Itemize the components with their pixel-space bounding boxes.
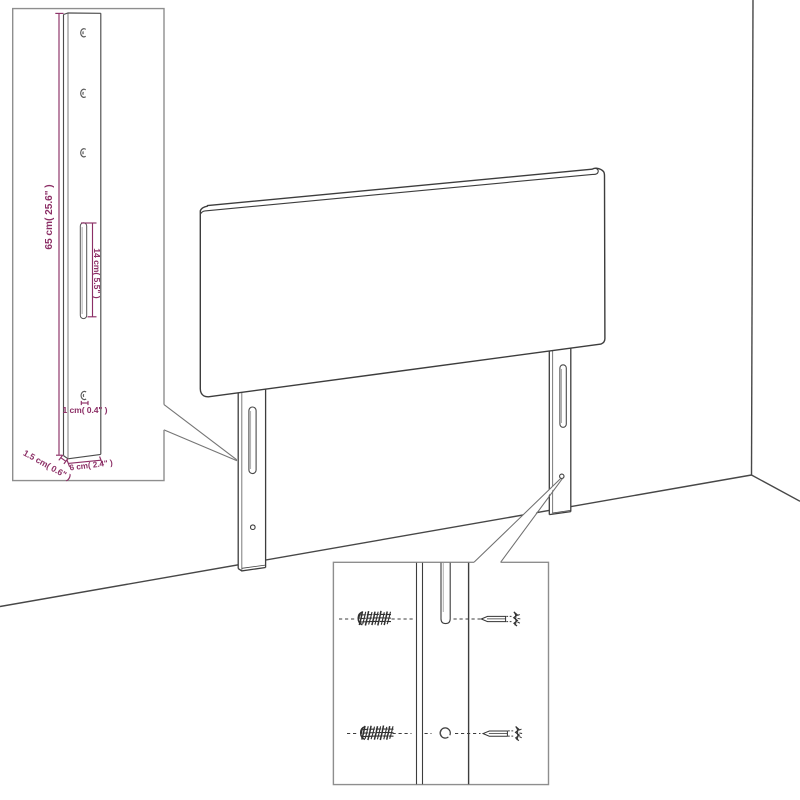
svg-text:14 cm( 5.5" ): 14 cm( 5.5" ) <box>92 248 102 298</box>
svg-text:1 cm( 0.4" ): 1 cm( 0.4" ) <box>63 405 108 415</box>
svg-text:65 cm( 25.6" ): 65 cm( 25.6" ) <box>44 184 55 249</box>
